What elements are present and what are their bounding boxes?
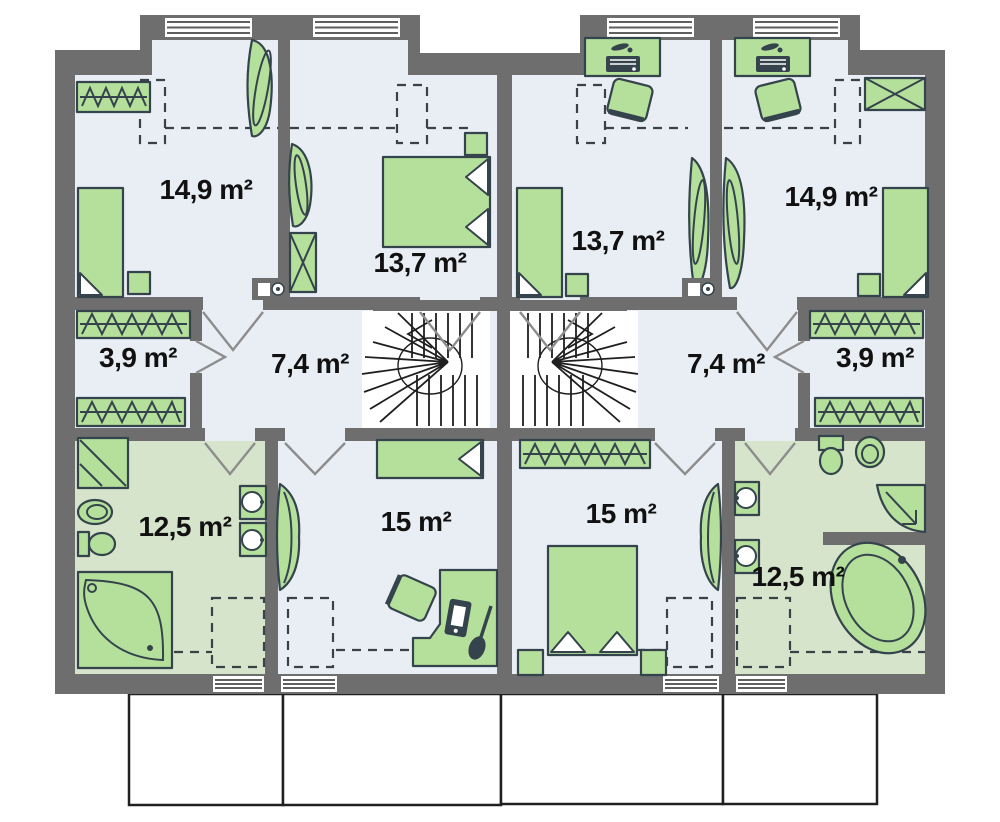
winder-stairs-left [362, 311, 490, 428]
room-label-right-bedroom-1: 14,9 m² [785, 181, 878, 213]
washbasin [240, 486, 266, 519]
bed [883, 188, 928, 297]
nightstand [858, 274, 880, 296]
winder-stairs-right [510, 311, 638, 428]
desk [585, 38, 660, 76]
lower-floor-outline [129, 694, 877, 805]
window [313, 18, 400, 37]
nightstand [128, 272, 150, 294]
room-label-right-bedroom-3: 15 m² [586, 498, 657, 530]
shelving [77, 398, 185, 426]
wall-fixture [682, 278, 718, 300]
bed [517, 188, 562, 297]
room-label-left-bedroom-1: 14,9 m² [160, 174, 253, 206]
wardrobe-rack [520, 440, 650, 468]
room-label-right-bathroom: 12,5 m² [752, 561, 845, 593]
bed [383, 157, 490, 247]
washbasin [856, 437, 884, 467]
room-label-right-hall: 7,4 m² [687, 348, 765, 380]
toilet [78, 532, 115, 556]
window [663, 676, 719, 692]
window [607, 18, 694, 37]
nightstand [566, 274, 588, 296]
nightstand [641, 650, 666, 675]
desk [735, 38, 810, 76]
window [753, 18, 840, 37]
window [281, 676, 337, 692]
party-wall [497, 53, 512, 674]
floor-plan-drawing [0, 0, 1000, 822]
room-label-left-bathroom: 12,5 m² [139, 511, 232, 543]
wardrobe [865, 78, 925, 110]
room-label-left-bedroom-2: 13,7 m² [374, 247, 467, 279]
wardrobe-rack [77, 82, 150, 112]
wall-fixture [252, 278, 288, 300]
washbasin [735, 482, 759, 515]
window [213, 676, 264, 692]
shelving [77, 311, 190, 338]
room-label-right-wardrobe: 3,9 m² [836, 342, 914, 374]
shower [78, 438, 128, 488]
bath-tap [898, 556, 906, 564]
room-label-left-hall: 7,4 m² [271, 348, 349, 380]
room-label-right-bedroom-2: 13,7 m² [572, 225, 665, 257]
shelving [815, 398, 923, 426]
room-label-left-wardrobe: 3,9 m² [99, 342, 177, 374]
room-label-left-bedroom-3: 15 m² [381, 506, 452, 538]
bed [548, 546, 637, 655]
bed [78, 188, 123, 297]
shelving [810, 311, 923, 338]
washbasin [78, 500, 112, 524]
toilet [819, 436, 843, 474]
corner-bathtub [78, 572, 172, 668]
washbasin [240, 523, 266, 556]
nightstand [518, 650, 543, 675]
floor-plan: 14,9 m² 13,7 m² 3,9 m² 7,4 m² 12,5 m² 15… [0, 0, 1000, 822]
nightstand [465, 133, 487, 155]
bed [377, 440, 483, 478]
wardrobe [290, 233, 316, 292]
window [736, 676, 787, 692]
window [165, 18, 252, 37]
